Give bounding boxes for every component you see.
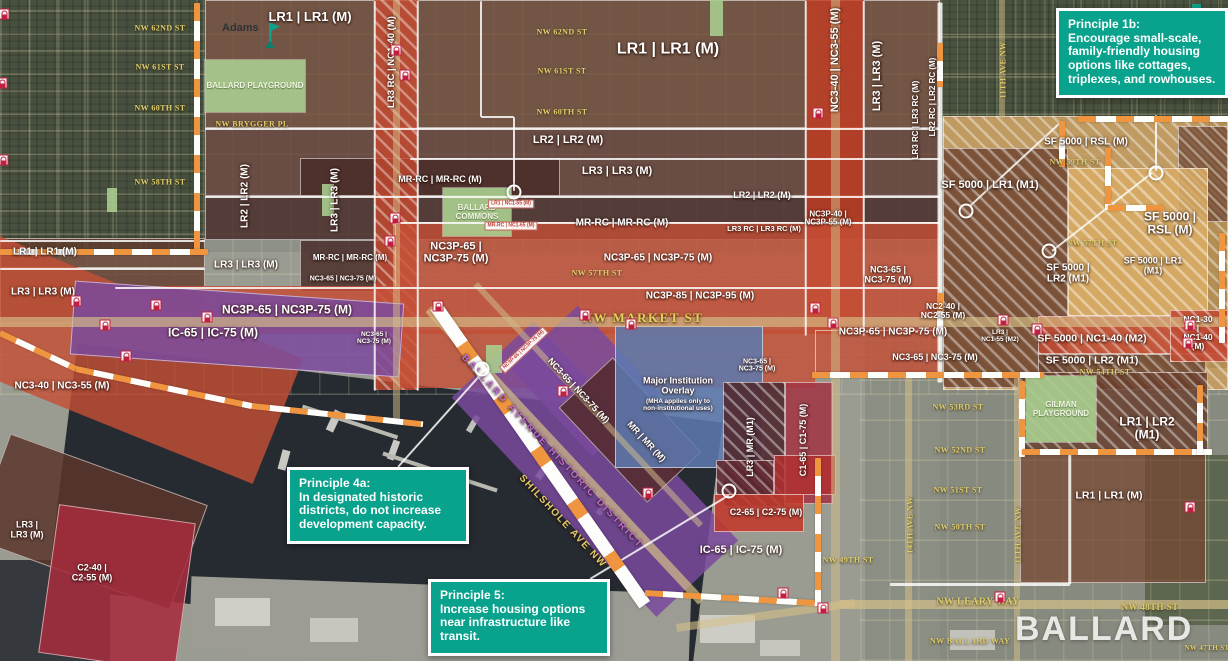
callout-body: In designated historic districts, do not… bbox=[299, 490, 441, 531]
urban-village-boundary bbox=[1022, 449, 1212, 455]
street-label: NW 58TH ST bbox=[135, 178, 186, 187]
street-label: NW 59TH ST bbox=[1050, 158, 1101, 167]
historic-landmark-icon bbox=[390, 213, 401, 224]
zone-label: LR3 | MR (M1) bbox=[746, 417, 756, 477]
zone-label: NC3-65 | NC3-75 (M) bbox=[739, 359, 776, 374]
adams-neighborhood-marker: Adams bbox=[222, 22, 280, 49]
zone-label: NC3-65 | NC3-75 (M) bbox=[310, 275, 377, 282]
leader-circle-marker bbox=[475, 362, 490, 377]
zone-label: LR2 | LR2 (M) bbox=[733, 191, 791, 201]
zone-label: NC3P-40 | NC3P-55 (M) bbox=[804, 211, 851, 228]
aerial-patch bbox=[215, 598, 270, 626]
zone-border-line bbox=[1069, 451, 1072, 584]
zone-label: LR3 | LR3 (M) bbox=[331, 168, 342, 232]
zone-label: IC-65 | IC-75 (M) bbox=[700, 545, 783, 557]
callout-title: Principle 5: bbox=[440, 589, 598, 603]
historic-landmark-icon bbox=[391, 45, 402, 56]
historic-landmark-icon bbox=[580, 310, 591, 321]
street-label: NW 52ND ST bbox=[935, 446, 986, 455]
callout-title: Principle 1b: bbox=[1068, 18, 1216, 32]
callout-body: Increase housing options near infrastruc… bbox=[440, 602, 585, 643]
urban-village-boundary bbox=[812, 372, 1044, 378]
zone-label: LR3 RC | LR3 RC (M) bbox=[727, 225, 801, 233]
zone-border-line bbox=[480, 1, 482, 117]
zone-region bbox=[1020, 450, 1206, 583]
zone-label: IC-65 | IC-75 (M) bbox=[168, 327, 258, 340]
zone-label: LR3 RC | NC1-40 (M) bbox=[387, 16, 397, 108]
zone-label: NC3-40 | NC3-55 (M) bbox=[830, 8, 842, 113]
aerial-patch bbox=[0, 0, 205, 252]
historic-landmark-icon bbox=[1185, 502, 1196, 513]
zone-label: LR2 RC | LR2 RC (M) bbox=[929, 58, 937, 137]
neighborhood-watermark: BALLARD bbox=[1015, 610, 1228, 661]
zone-label: LR1 | LR1 (M) bbox=[268, 10, 351, 24]
urban-village-boundary bbox=[194, 3, 200, 255]
zone-border-line bbox=[410, 158, 940, 160]
urban-village-boundary bbox=[1219, 233, 1225, 343]
street-label: 11TH AVE NW bbox=[999, 42, 1008, 99]
zone-label: C2-40 | C2-55 (M) bbox=[72, 563, 113, 582]
historic-landmark-icon bbox=[643, 488, 654, 499]
leader-circle-marker bbox=[959, 204, 974, 219]
street-label: NW 50TH ST bbox=[935, 523, 986, 532]
zone-region bbox=[710, 0, 723, 36]
zone-label: LR1 | LR2 (M1) bbox=[1107, 415, 1188, 440]
zone-border-line bbox=[481, 116, 514, 118]
leader-circle-marker bbox=[722, 484, 737, 499]
street-label: NW 57TH ST bbox=[572, 269, 623, 278]
zone-border-line bbox=[513, 117, 515, 191]
principle-5-callout: Principle 5: Increase housing options ne… bbox=[428, 579, 610, 656]
street-label: NW 61ST ST bbox=[537, 67, 586, 76]
zone-label: MR-RC | MR-RC (M) bbox=[398, 175, 482, 185]
principle-4a-callout: Principle 4a: In designated historic dis… bbox=[287, 467, 469, 544]
street-label: NW 53RD ST bbox=[933, 403, 984, 412]
adams-marker-label: Adams bbox=[222, 22, 259, 34]
historic-landmark-icon bbox=[433, 301, 444, 312]
zone-label: SF 5000 | LR1 (M1) bbox=[941, 180, 1038, 192]
zone-label: NC3P-65 | NC3P-75 (M) bbox=[222, 304, 352, 317]
street-label: NW 61ST ST bbox=[135, 63, 184, 72]
street-label: NW 51ST ST bbox=[933, 486, 982, 495]
park-area: BALLARD PLAYGROUND bbox=[205, 60, 305, 112]
zone-label: LR2 | LR2 (M) bbox=[533, 135, 603, 147]
street-label: 14TH AVE NW bbox=[906, 496, 915, 553]
urban-village-boundary bbox=[1105, 148, 1111, 210]
street-label: NW 62ND ST bbox=[135, 24, 186, 33]
historic-landmark-icon bbox=[151, 300, 162, 311]
zone-label: NC3-40 | NC3-55 (M) bbox=[14, 382, 109, 393]
historic-landmark-icon bbox=[121, 351, 132, 362]
aerial-patch bbox=[865, 330, 940, 661]
historic-landmark-icon bbox=[778, 588, 789, 599]
zone-label: LR3 | LR3 (M) bbox=[11, 520, 44, 539]
zone-region bbox=[38, 504, 196, 661]
street-label: NW BRYGGER PL bbox=[215, 120, 288, 129]
zone-region bbox=[107, 188, 117, 212]
zone-border-line bbox=[0, 240, 205, 242]
historic-landmark-icon bbox=[0, 155, 9, 166]
street-label: NW LEARY WAY bbox=[936, 597, 1019, 608]
zone-border-line bbox=[1155, 115, 1157, 171]
historic-landmark-icon bbox=[626, 319, 637, 330]
zone-label: NC3P-85 | NC3P-95 (M) bbox=[646, 292, 754, 303]
zone-label: NC3P-65 | NC3P-75 (M) bbox=[839, 328, 947, 339]
flag-icon bbox=[262, 22, 280, 49]
urban-village-boundary bbox=[937, 43, 943, 87]
street-label: NW 62ND ST bbox=[537, 28, 588, 37]
zone-label: SF 5000 | LR2 (M1) bbox=[1046, 355, 1139, 366]
historic-landmark-icon bbox=[0, 78, 8, 89]
zone-label: MR-RC | MR-RC (M) bbox=[313, 254, 387, 262]
street-label: NW 54TH ST bbox=[1080, 368, 1131, 377]
zone-border-line bbox=[805, 1, 807, 336]
principle-1b-callout: Principle 1b: Encourage small-scale, fam… bbox=[1056, 8, 1228, 98]
callout-body: Encourage small-scale, family-friendly h… bbox=[1068, 31, 1215, 86]
zone-label: MR-RC | NC1-65 (M) bbox=[485, 222, 538, 231]
callout-title: Principle 4a: bbox=[299, 477, 457, 491]
leader-circle-marker bbox=[1149, 166, 1164, 181]
historic-landmark-icon bbox=[558, 386, 569, 397]
historic-landmark-icon bbox=[400, 70, 411, 81]
zone-label: LR3 | LR3 (M) bbox=[582, 166, 652, 178]
historic-landmark-icon bbox=[0, 9, 10, 20]
street-label: 11TH AVE NW bbox=[1014, 507, 1023, 564]
historic-landmark-icon bbox=[1183, 338, 1194, 349]
zone-border-line bbox=[205, 128, 940, 130]
zone-label: LR3 | LR3 (M) bbox=[11, 288, 75, 299]
zone-label: LR2 | LR2 (M) bbox=[241, 164, 252, 228]
historic-landmark-icon bbox=[1185, 320, 1196, 331]
zone-label: C1-65 | C1-75 (M) bbox=[799, 404, 809, 477]
street-label: NW 57TH ST bbox=[1067, 239, 1118, 248]
zone-border-line bbox=[417, 1, 419, 391]
historic-landmark-icon bbox=[202, 312, 213, 323]
zone-label: NC3P-65 | NC3P-75 (M) bbox=[604, 254, 712, 265]
street-label: NW MARKET ST bbox=[583, 310, 704, 326]
zoning-map[interactable]: BALLARD PLAYGROUNDBALLARD COMMONSGILMAN … bbox=[0, 0, 1228, 661]
zone-label: NC3-65 | NC3-75 (M) bbox=[864, 265, 911, 284]
street-label: NW 60TH ST bbox=[135, 104, 186, 113]
historic-landmark-icon bbox=[385, 236, 396, 247]
zone-label: LR1 | NC1-55 (M) bbox=[488, 200, 534, 209]
zone-label: NC3P-65 | NC3P-75 (M) bbox=[424, 241, 489, 264]
urban-village-boundary bbox=[1078, 116, 1228, 122]
zone-label: LR3 | LR3 (M) bbox=[872, 41, 884, 111]
zone-label: NC2-40 | NC2-55 (M) bbox=[921, 302, 965, 320]
zone-label: NC3-65 | NC3-75 (M) bbox=[357, 332, 391, 346]
zone-label: SF 5000 | NC1-40 (M2) bbox=[1037, 333, 1146, 344]
zone-border-line bbox=[863, 1, 865, 336]
zone-label: LR3 | LR3 (M) bbox=[214, 261, 278, 272]
historic-landmark-icon bbox=[810, 303, 821, 314]
zone-label: SF 5000 | LR2 (M1) bbox=[1046, 263, 1089, 284]
urban-village-boundary bbox=[815, 458, 821, 606]
urban-village-boundary bbox=[1019, 381, 1025, 457]
historic-landmark-icon bbox=[100, 320, 111, 331]
zone-label: LR1 | LR1 (M) bbox=[617, 42, 719, 59]
aerial-patch bbox=[760, 640, 800, 656]
zone-label: SF 5000 | LR1 (M1) bbox=[1116, 256, 1191, 275]
historic-landmark-icon bbox=[1032, 324, 1043, 335]
zone-label: LR3 | NC1-55 (M2) bbox=[981, 330, 1019, 344]
leader-circle-marker bbox=[1042, 244, 1057, 259]
zone-label: Major Institution Overlay bbox=[643, 376, 713, 395]
zone-label: MR-RC | MR-RC (M) bbox=[576, 219, 669, 230]
zone-border-line bbox=[115, 287, 940, 289]
historic-landmark-icon bbox=[998, 315, 1009, 326]
park-area: GILMAN PLAYGROUND bbox=[1026, 376, 1096, 442]
zone-label: LR3 RC | LR3 RC (M) bbox=[912, 81, 920, 160]
urban-village-boundary bbox=[1197, 385, 1203, 455]
historic-landmark-icon bbox=[813, 108, 824, 119]
park-label: GILMAN PLAYGROUND bbox=[1026, 376, 1096, 442]
historic-landmark-icon bbox=[818, 603, 829, 614]
street-label: NW 60TH ST bbox=[537, 108, 588, 117]
historic-landmark-icon bbox=[995, 592, 1006, 603]
historic-landmark-icon bbox=[828, 318, 839, 329]
zone-label: (MHA applies only to non-institutional u… bbox=[643, 399, 713, 413]
park-label: BALLARD PLAYGROUND bbox=[205, 60, 305, 112]
zone-border-line bbox=[205, 196, 940, 198]
zone-label: C2-65 | C2-75 (M) bbox=[730, 508, 803, 518]
leader-circle-marker bbox=[507, 185, 522, 200]
zone-label: LR1 | LR1 (M) bbox=[13, 248, 77, 259]
zone-label: SF 5000 | RSL (M) bbox=[1141, 210, 1199, 235]
street-label: NW BALLARD WAY bbox=[930, 637, 1010, 646]
zone-label: LR1 | LR1 (M) bbox=[1075, 490, 1142, 501]
zone-label: NC3-65 | NC3-75 (M) bbox=[892, 353, 978, 363]
zone-label: SF 5000 | RSL (M) bbox=[1044, 138, 1128, 149]
zone-border-line bbox=[890, 583, 1070, 586]
historic-landmark-icon bbox=[71, 296, 82, 307]
street-label: NW 49TH ST bbox=[823, 556, 874, 565]
aerial-patch bbox=[310, 618, 358, 642]
zone-border-line bbox=[0, 268, 205, 270]
